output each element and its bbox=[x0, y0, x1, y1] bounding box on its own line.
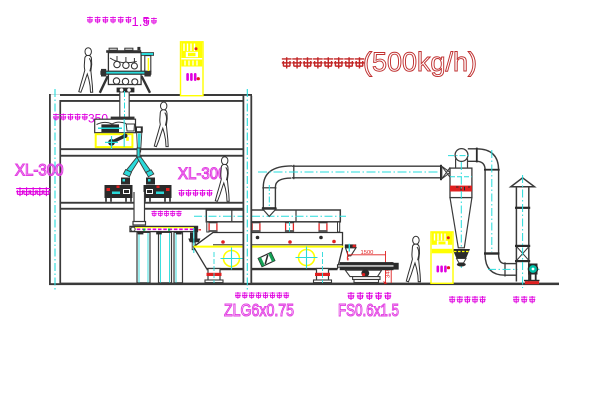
svg-text:(500kg/h): (500kg/h) bbox=[363, 47, 477, 77]
svg-text:5: 5 bbox=[347, 257, 350, 263]
svg-text:XL-300: XL-300 bbox=[15, 162, 64, 180]
svg-text:ZLG6x0.75: ZLG6x0.75 bbox=[224, 300, 294, 320]
svg-text:XL-300: XL-300 bbox=[178, 165, 227, 183]
svg-text:FS0.6x1.5: FS0.6x1.5 bbox=[338, 300, 399, 320]
